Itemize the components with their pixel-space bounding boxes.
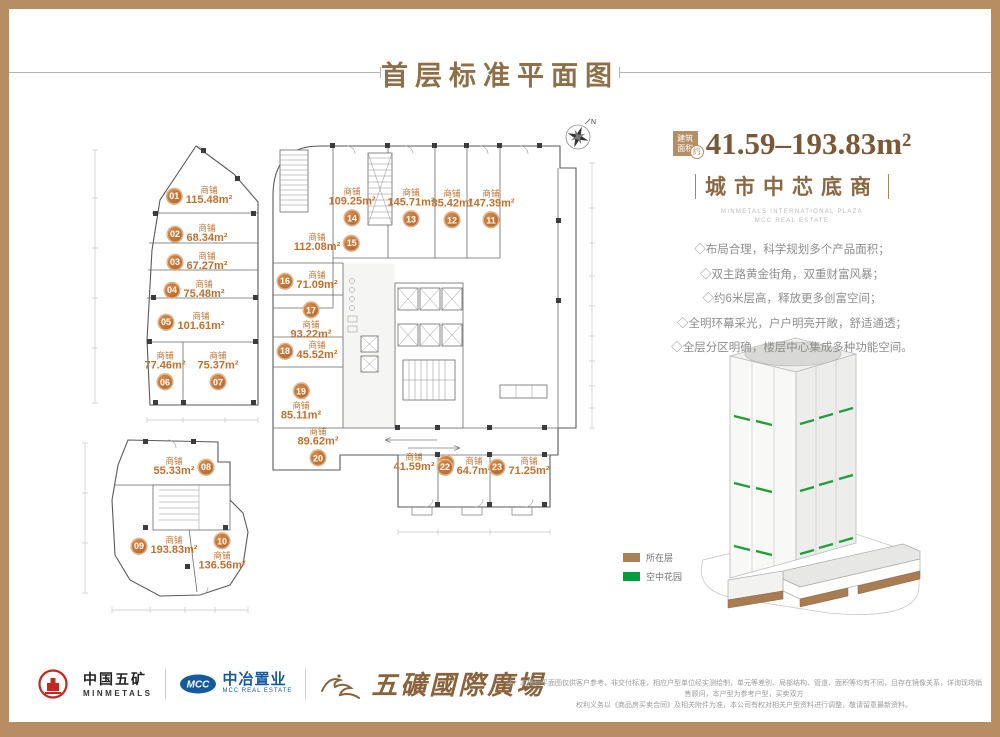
- shop-number-badge: 16: [277, 273, 294, 290]
- shop-text: 商铺55.33m²: [154, 457, 195, 477]
- shop-label-13: 商铺145.71m²13: [387, 188, 434, 227]
- shop-number-badge: 10: [214, 532, 231, 549]
- slogan-headline: 城市中芯底商: [668, 171, 916, 201]
- shop-number-badge: 03: [167, 254, 184, 271]
- shop-label-16: 16商铺71.09m²: [277, 271, 338, 291]
- shop-label-15: 商铺112.08m²15: [294, 233, 360, 253]
- legend-swatch: [623, 553, 640, 562]
- shop-text: 商铺77.46m²: [145, 351, 186, 371]
- shop-number-badge: 05: [157, 314, 174, 331]
- shop-label-17: 17商铺93.22m²: [291, 301, 332, 340]
- minmetals-logo-icon: [36, 667, 70, 701]
- shop-number-badge: 01: [166, 188, 183, 205]
- frame-right: [991, 0, 1000, 737]
- shop-label-20: 商铺89.62m²20: [298, 427, 339, 466]
- shop-label-12: 商铺85.42m²12: [432, 189, 473, 228]
- compass-north-label: N: [591, 119, 596, 126]
- shop-number-badge: 09: [130, 538, 147, 555]
- shop-label-08: 商铺55.33m²08: [154, 457, 215, 477]
- plan-legend: 所在层空中花园: [623, 551, 682, 589]
- english-caption: MINMETALS INTERNATIONAL PLAZA MCC REAL E…: [668, 208, 916, 226]
- shop-label-22: 22商铺64.7m²: [437, 457, 492, 477]
- shop-label-07: 商铺75.37m²07: [198, 351, 239, 390]
- brochure-page: 首层标准平面图: [0, 0, 1000, 737]
- shop-number-badge: 06: [156, 374, 173, 391]
- disclaimer-text: 注：本楼层平面图仅供客户参考，非交付标准，相应户型单位经实测绘制，单元等差别、局…: [503, 678, 985, 711]
- legend-label: 所在层: [646, 551, 673, 564]
- shop-text: 商铺112.08m²: [294, 233, 340, 253]
- shop-text: 商铺115.48m²: [186, 186, 232, 206]
- shop-text: 商铺136.56m²: [198, 551, 245, 571]
- selling-point: ◇布局合理，科学规划多个产品面积；: [668, 238, 916, 263]
- selling-point: ◇全明环幕采光，户户明亮开敞，舒适通透；: [668, 312, 916, 337]
- legend-item: 空中花园: [623, 570, 682, 583]
- shop-text: 商铺85.11m²: [281, 401, 321, 421]
- shop-label-02: 02商铺68.34m²: [167, 224, 228, 244]
- mcc-wordmark: MCC 中冶置业 MCC REAL ESTATE: [179, 672, 292, 695]
- selling-point: ◇约6米层高，释放更多创富空间；: [668, 287, 916, 312]
- shop-number-badge: 11: [483, 212, 500, 229]
- shop-number-badge: 22: [437, 459, 454, 476]
- shop-text: 商铺71.25m²: [509, 457, 550, 477]
- shop-number-badge: 08: [197, 459, 214, 476]
- shop-number-badge: 12: [443, 212, 460, 229]
- shop-number-badge: 15: [343, 235, 360, 252]
- page-title: 首层标准平面图: [0, 54, 1000, 93]
- building-illustration: [688, 328, 928, 616]
- footer-brandbar: 中国五矿 MINMETALS MCC 中冶置业 MCC REAL ESTATE …: [36, 665, 545, 702]
- frame-top: [0, 0, 1000, 9]
- slogan-bar-left: [695, 174, 696, 199]
- shop-label-18: 18商铺45.52m²: [277, 341, 338, 361]
- shop-number-badge: 17: [302, 301, 319, 318]
- shop-number-badge: 07: [209, 374, 226, 391]
- mcc-logo-icon: MCC: [179, 674, 217, 694]
- shop-text: 商铺85.42m²: [432, 189, 473, 209]
- footer-divider-2: [305, 669, 306, 699]
- shop-number-badge: 18: [277, 343, 294, 360]
- shop-text: 商铺193.83m²: [150, 536, 197, 556]
- shop-text: 商铺67.27m²: [187, 252, 228, 272]
- frame-left: [0, 0, 9, 737]
- selling-point: ◇全层分区明确，楼层中心集成多种功能空间。: [668, 336, 916, 361]
- shop-label-19: 19商铺85.11m²: [281, 382, 321, 421]
- shop-label-04: 04商铺75.48m²: [164, 280, 225, 300]
- shop-text: 商铺101.61m²: [177, 312, 224, 332]
- shop-text: 商铺75.48m²: [184, 280, 225, 300]
- shop-label-11: 商铺147.39m²11: [467, 189, 514, 228]
- shop-number-badge: 02: [167, 226, 184, 243]
- slogan-bar-right: [888, 174, 889, 199]
- shop-text: 商铺109.25m²: [328, 187, 375, 207]
- shop-text: 商铺68.34m²: [187, 224, 228, 244]
- shop-label-05: 05商铺101.61m²: [157, 312, 224, 332]
- approx-mark: 约: [690, 145, 704, 159]
- shop-label-10: 10商铺136.56m²: [198, 532, 245, 571]
- selling-point: ◇双主路黄金街角，双重财富风暴；: [668, 263, 916, 288]
- shop-text: 商铺45.52m²: [297, 341, 338, 361]
- shop-text: 商铺75.37m²: [198, 351, 239, 371]
- shop-text: 商铺71.09m²: [297, 271, 338, 291]
- shop-number-badge: 20: [309, 450, 326, 467]
- legend-item: 所在层: [623, 551, 682, 564]
- shop-text: 商铺147.39m²: [467, 189, 514, 209]
- shop-text: 商铺64.7m²: [457, 457, 492, 477]
- floor-area-badge: 建筑 面积 约: [673, 131, 698, 156]
- shop-label-03: 03商铺67.27m²: [167, 252, 228, 272]
- footer-divider-1: [165, 669, 166, 699]
- shop-label-09: 09商铺193.83m²: [130, 536, 197, 556]
- legend-label: 空中花园: [646, 570, 682, 583]
- legend-swatch: [623, 572, 640, 581]
- shop-label-23: 23商铺71.25m²: [489, 457, 550, 477]
- shop-number-badge: 23: [489, 459, 506, 476]
- minmetals-wordmark: 中国五矿 MINMETALS: [83, 669, 152, 698]
- area-range-headline: 41.59–193.83m²: [706, 126, 912, 162]
- shop-text: 商铺41.59m²: [394, 453, 435, 473]
- shop-label-14: 商铺109.25m²14: [328, 187, 375, 226]
- shop-text: 商铺145.71m²: [387, 188, 434, 208]
- frame-bottom: [0, 722, 1000, 737]
- dragon-icon: [319, 669, 365, 699]
- shop-label-01: 01商铺115.48m²: [166, 186, 232, 206]
- shop-number-badge: 13: [403, 211, 420, 228]
- shop-text: 商铺93.22m²: [291, 320, 332, 340]
- shop-number-badge: 19: [293, 382, 310, 399]
- selling-points-list: ◇布局合理，科学规划多个产品面积；◇双主路黄金街角，双重财富风暴；◇约6米层高，…: [668, 238, 916, 361]
- svg-text:MCC: MCC: [187, 679, 211, 690]
- shop-number-badge: 14: [344, 210, 361, 227]
- info-panel: 建筑 面积 约 41.59–193.83m² 城市中芯底商 MINMETALS …: [668, 126, 916, 361]
- shop-text: 商铺89.62m²: [298, 427, 339, 447]
- compass-rose: N: [563, 119, 596, 152]
- shop-label-06: 商铺77.46m²06: [145, 351, 186, 390]
- shop-number-badge: 04: [164, 282, 181, 299]
